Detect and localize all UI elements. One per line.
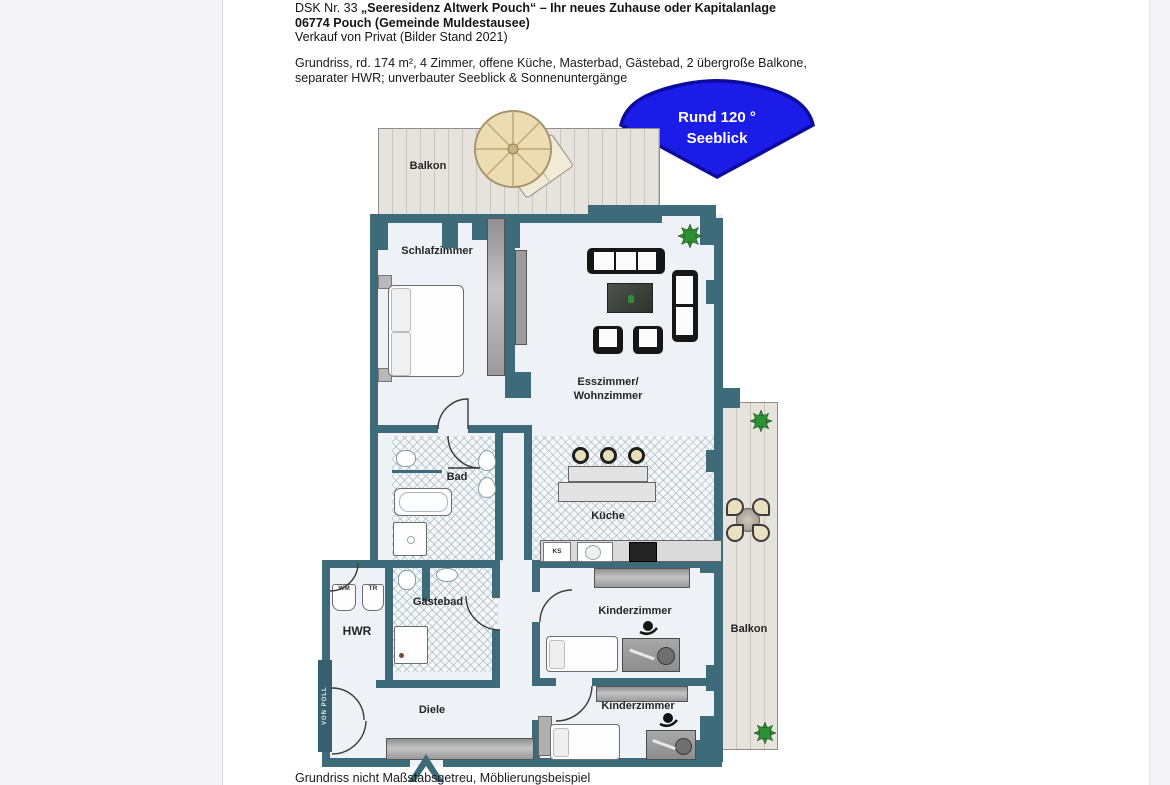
title-bold: „Seeresidenz Altwerk Pouch“ – Ihr neues …: [361, 1, 776, 15]
door-arcs-overlay: [310, 120, 822, 785]
door-arc: [332, 721, 366, 754]
door-arc: [438, 399, 468, 429]
room-label-wohnzimmer: Wohnzimmer: [558, 390, 658, 402]
title-line-1: DSK Nr. 33 „Seeresidenz Altwerk Pouch“ –…: [295, 1, 835, 16]
floor-plan: KS WM TR: [310, 120, 822, 785]
listing-header: DSK Nr. 33 „Seeresidenz Altwerk Pouch“ –…: [295, 1, 835, 45]
description-line-1: Grundriss, rd. 174 m², 4 Zimmer, offene …: [295, 56, 835, 71]
room-label-schlafzimmer: Schlafzimmer: [387, 245, 487, 257]
door-arc: [540, 590, 572, 622]
room-label-kueche: Küche: [578, 510, 638, 522]
room-label-balkon-right: Balkon: [722, 623, 776, 635]
door-arc: [556, 686, 592, 721]
room-label-diele: Diele: [402, 704, 462, 716]
room-label-balkon-top: Balkon: [378, 160, 478, 172]
plan-disclaimer: Grundriss nicht Maßstabsgetreu, Möblieru…: [295, 771, 835, 785]
door-arc: [448, 436, 480, 468]
room-label-hwr: HWR: [327, 624, 387, 638]
title-line-2: 06774 Pouch (Gemeinde Muldestausee): [295, 16, 835, 31]
room-label-kinderzimmer-1: Kinderzimmer: [585, 605, 685, 617]
title-line-3: Verkauf von Privat (Bilder Stand 2021): [295, 30, 835, 45]
room-label-gaestebad: Gästebad: [398, 596, 478, 608]
agency-watermark: VON POLL: [318, 660, 332, 752]
title-prefix: DSK Nr. 33: [295, 1, 361, 15]
room-label-bad: Bad: [427, 471, 487, 483]
room-label-esszimmer: Esszimmer/: [558, 376, 658, 388]
room-label-kinderzimmer-2: Kinderzimmer: [588, 700, 688, 712]
document-viewer: DSK Nr. 33 „Seeresidenz Altwerk Pouch“ –…: [0, 0, 1170, 785]
door-arc: [332, 688, 364, 720]
door-arc: [330, 563, 358, 591]
